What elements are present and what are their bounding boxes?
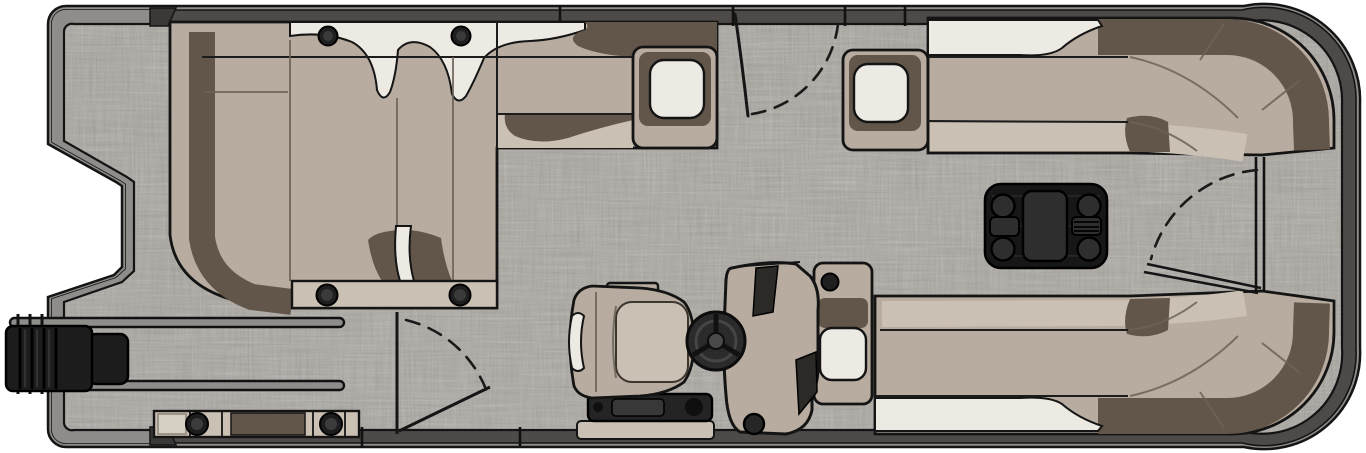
pontoon-floorplan-diagram	[0, 0, 1366, 453]
chair-headrest-pad	[569, 313, 584, 371]
bench-front-shadow	[1125, 116, 1170, 152]
table-cup-holder	[1078, 238, 1101, 261]
bow-lounge-bottom	[875, 291, 1334, 434]
speaker	[320, 413, 342, 435]
top-rail-cup-holder	[319, 27, 338, 46]
table-cup-holder	[992, 238, 1015, 261]
base-slider	[612, 399, 664, 416]
bench-cup-holder	[450, 285, 471, 306]
table-cup-holder	[992, 195, 1015, 218]
armrest-box-starboard	[843, 50, 928, 150]
bench-front-band	[882, 303, 1245, 314]
speaker	[186, 413, 208, 435]
table-grill-vent	[1072, 217, 1101, 235]
bench-front-band	[930, 137, 1245, 148]
step-texture-pad	[158, 414, 186, 434]
helm-platform	[577, 421, 714, 439]
wheel-hub	[708, 333, 724, 349]
bench-cup-holder	[317, 285, 338, 306]
bow-lounge-top	[928, 18, 1334, 155]
outboard-motor	[6, 326, 128, 391]
table-center-pad	[1023, 191, 1067, 261]
armrest-pad	[820, 328, 866, 380]
armrest-pad	[650, 60, 704, 118]
console-cup-holder	[822, 274, 839, 291]
base-knob	[685, 398, 703, 416]
top-rail-cup-holder	[452, 27, 471, 46]
steering-wheel	[687, 312, 745, 370]
stern-step-panel	[154, 411, 359, 437]
table-side-tray	[990, 217, 1019, 236]
armrest-pad	[854, 64, 908, 122]
chair-seat-cushion	[616, 302, 688, 382]
cocktail-table	[985, 184, 1107, 268]
armrest-box-port	[633, 47, 717, 148]
table-cup-holder	[1078, 195, 1101, 218]
step-storage-hatch	[231, 413, 305, 435]
bow-lounge-armrest-console	[814, 263, 872, 404]
console-caster	[744, 414, 764, 434]
cushion-separator	[928, 121, 1128, 122]
base-knob	[593, 402, 603, 412]
